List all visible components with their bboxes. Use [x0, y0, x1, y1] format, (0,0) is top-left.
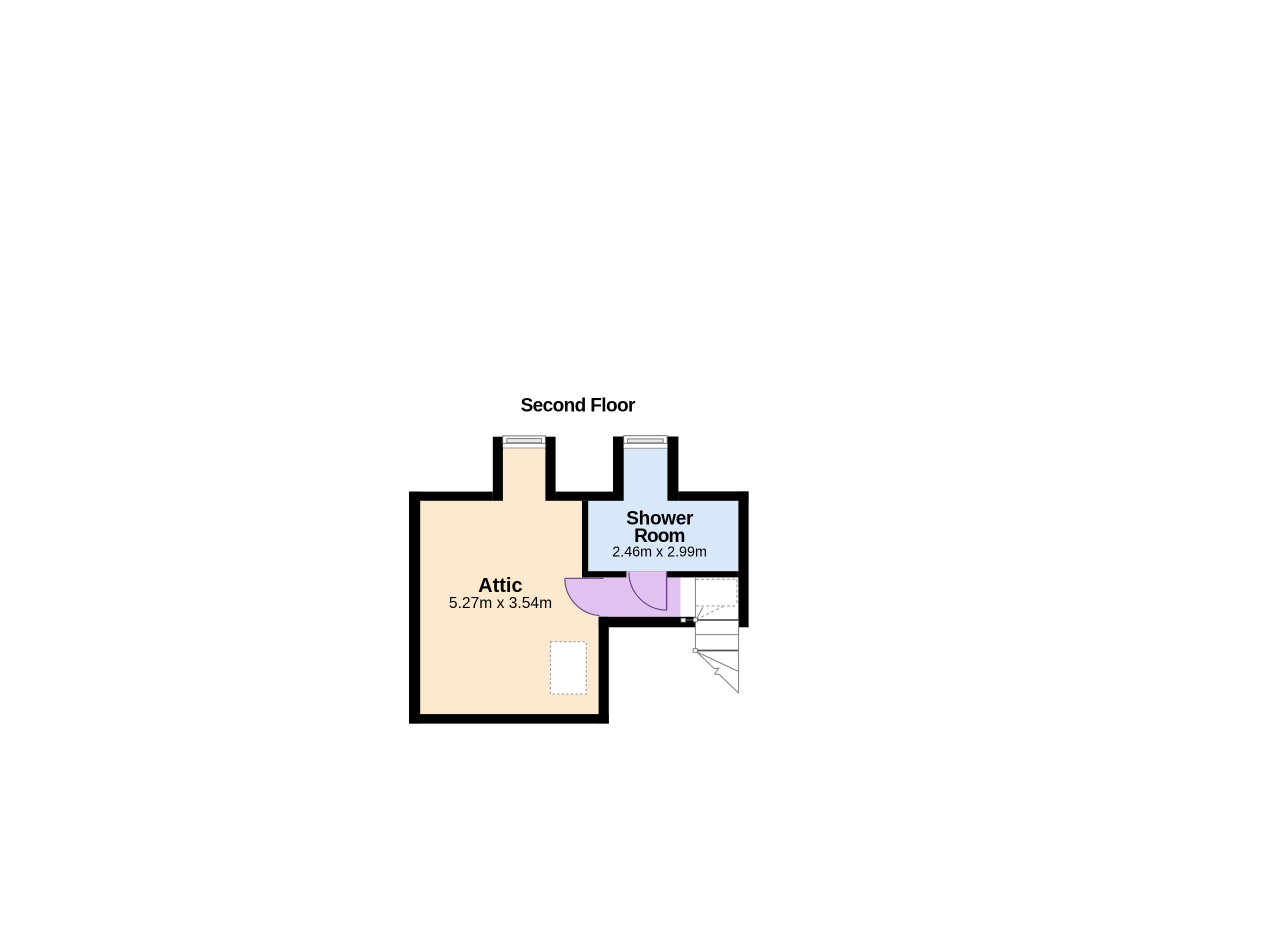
svg-text:Second Floor: Second Floor: [521, 395, 636, 416]
svg-text:2.46m x 2.99m: 2.46m x 2.99m: [612, 545, 707, 561]
svg-text:Attic: Attic: [478, 575, 522, 597]
svg-text:5.27m x 3.54m: 5.27m x 3.54m: [449, 595, 552, 612]
